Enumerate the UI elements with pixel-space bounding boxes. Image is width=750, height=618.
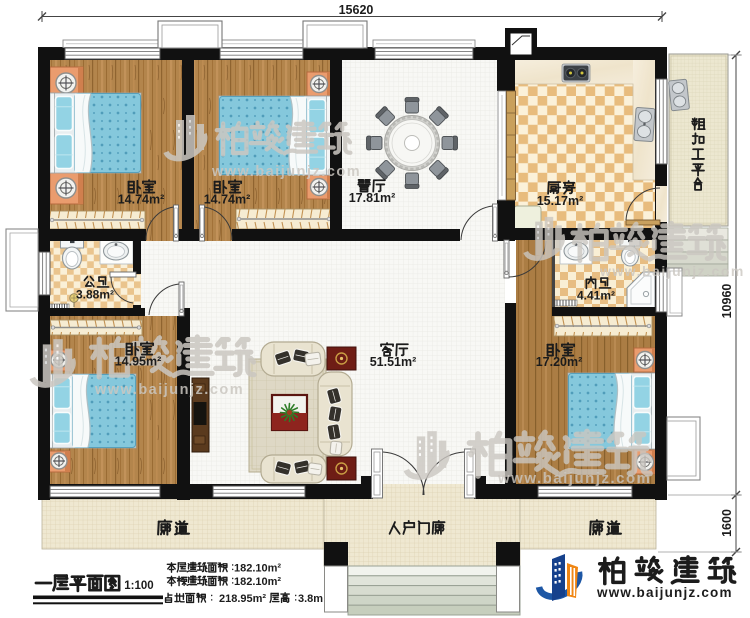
svg-text:1:100: 1:100 (124, 580, 153, 592)
svg-text:51.51m²: 51.51m² (370, 355, 417, 369)
svg-text:www.baijunjz.com: www.baijunjz.com (599, 263, 745, 279)
svg-text:15620: 15620 (339, 3, 374, 17)
svg-text:17.81m²: 17.81m² (349, 191, 396, 205)
svg-text:4.41m²: 4.41m² (577, 289, 615, 303)
svg-text:218.95m²: 218.95m² (219, 593, 266, 605)
svg-text:15.17m²: 15.17m² (537, 194, 584, 208)
svg-text:www.baijunjz.com: www.baijunjz.com (94, 382, 244, 398)
svg-text:182.10m²: 182.10m² (234, 576, 281, 588)
svg-text:www.baijunjz.com: www.baijunjz.com (211, 164, 361, 180)
svg-text:1600: 1600 (720, 509, 734, 537)
svg-text:10960: 10960 (720, 284, 734, 319)
svg-text:17.20m²: 17.20m² (536, 355, 583, 369)
svg-text:14.74m²: 14.74m² (118, 193, 165, 207)
svg-text:www.baijunjz.com: www.baijunjz.com (596, 585, 733, 600)
svg-text:182.10m²: 182.10m² (234, 563, 281, 575)
svg-text:14.74m²: 14.74m² (204, 193, 251, 207)
svg-text:3.88m²: 3.88m² (76, 288, 114, 302)
svg-text:3.8m: 3.8m (298, 593, 323, 605)
svg-text:14.95m²: 14.95m² (115, 355, 162, 369)
svg-text:www.baijunjz.com: www.baijunjz.com (497, 470, 651, 487)
